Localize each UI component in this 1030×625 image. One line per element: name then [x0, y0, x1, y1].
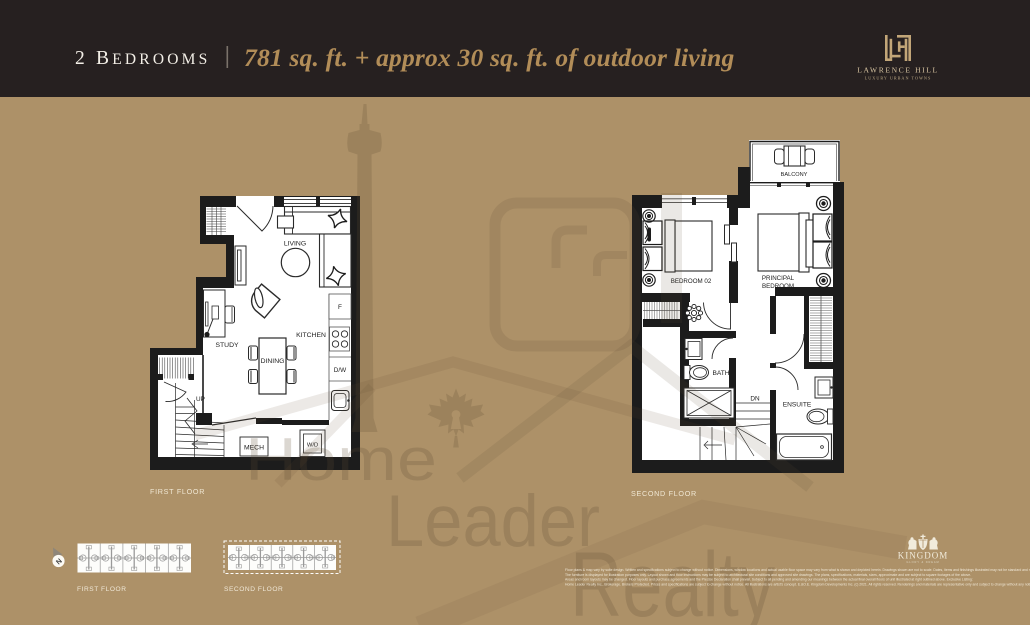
- svg-text:Areas and room layouts may be: Areas and room layouts may be changed. F…: [565, 578, 973, 582]
- svg-text:Leader: Leader: [386, 481, 600, 562]
- svg-text:PRINCIPAL: PRINCIPAL: [762, 275, 795, 282]
- svg-text:781 sq. ft. + approx 30 sq. ft: 781 sq. ft. + approx 30 sq. ft. of outdo…: [244, 43, 734, 72]
- svg-text:Home Leader Realty Inc., Broke: Home Leader Realty Inc., Brokerage. Brok…: [565, 582, 1030, 586]
- svg-text:BATH: BATH: [712, 370, 729, 377]
- svg-text:2 BEDROOMS: 2 BEDROOMS: [75, 48, 210, 69]
- svg-text:LUXURY URBAN TOWNS: LUXURY URBAN TOWNS: [865, 76, 932, 81]
- svg-text:LIVING: LIVING: [284, 241, 306, 248]
- svg-text:SECOND FLOOR: SECOND FLOOR: [224, 586, 283, 593]
- svg-text:BALCONY: BALCONY: [781, 172, 808, 178]
- svg-text:FIRST FLOOR: FIRST FLOOR: [150, 487, 205, 496]
- svg-text:F: F: [338, 304, 342, 311]
- svg-text:BEDROOM: BEDROOM: [762, 283, 794, 290]
- svg-text:D/W: D/W: [334, 367, 347, 374]
- svg-text:KITCHEN: KITCHEN: [296, 332, 326, 339]
- svg-text:The furniture is displayed for: The furniture is displayed for illustrat…: [565, 573, 971, 577]
- svg-text:SECOND FLOOR: SECOND FLOOR: [631, 489, 697, 498]
- svg-text:ENSUITE: ENSUITE: [783, 402, 812, 409]
- svg-text:LAWRENCE HILL: LAWRENCE HILL: [857, 66, 939, 75]
- svg-text:DN: DN: [750, 396, 760, 403]
- svg-text:Floor plans & map vary by suit: Floor plans & map vary by suite design. …: [565, 568, 1030, 572]
- svg-text:GLORY & DREAM: GLORY & DREAM: [906, 560, 939, 564]
- svg-text:DINING: DINING: [261, 358, 285, 365]
- svg-text:FIRST FLOOR: FIRST FLOOR: [77, 586, 127, 593]
- svg-text:STUDY: STUDY: [215, 342, 239, 349]
- svg-text:KINGDOM: KINGDOM: [898, 551, 949, 561]
